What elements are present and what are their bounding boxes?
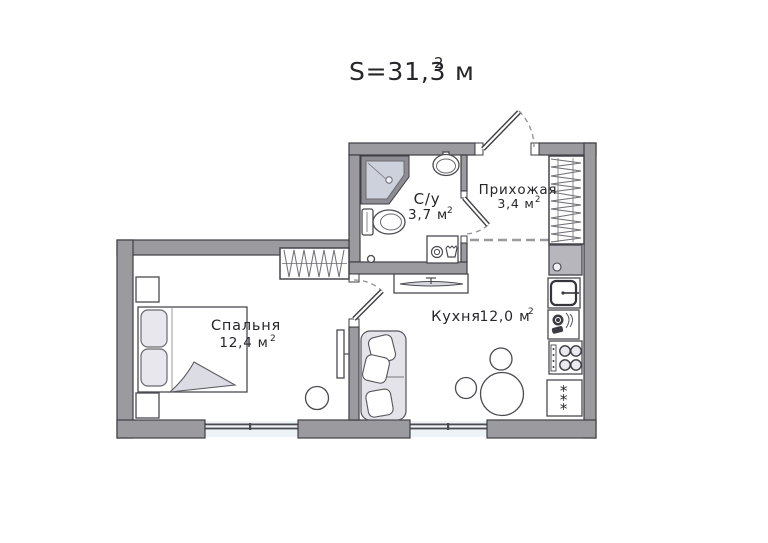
entrance-door-leaf xyxy=(483,112,519,149)
stove-knob xyxy=(553,348,555,350)
bottom-wall-left xyxy=(117,420,205,438)
dishwasher-icon xyxy=(548,310,579,339)
bottom-wall-right xyxy=(487,420,596,438)
dishwasher-body xyxy=(548,310,579,339)
fridge-icon: * * * xyxy=(547,380,582,418)
bedroom-wardrobe-icon xyxy=(280,248,349,279)
nightstand-top xyxy=(136,277,159,302)
bedroom-door-leaf xyxy=(354,291,382,319)
bathroom-door-swing-arc xyxy=(464,225,488,234)
toilet-bowl xyxy=(373,210,405,234)
appliance-body xyxy=(549,245,582,275)
bedroom-window-mullion xyxy=(249,423,251,430)
shower-icon xyxy=(361,156,409,204)
bedroom-label: Спальня 12,4 м 2 xyxy=(211,318,281,351)
bedroom-tv-icon xyxy=(337,330,349,378)
bedroom-window-frame xyxy=(205,424,298,426)
bathroom-door-post-bottom xyxy=(461,236,467,243)
entrance-door-swing-arc xyxy=(519,111,534,147)
entrance-door-post-left xyxy=(475,143,483,155)
room-area: 12,0 м xyxy=(480,309,531,325)
sofa-pillow xyxy=(361,354,390,385)
room-area-superscript: 2 xyxy=(447,206,454,216)
dining-table-icon xyxy=(481,373,524,416)
appliance-knob xyxy=(553,263,561,271)
dining-chair-icon xyxy=(490,348,512,370)
bottom-wall-middle xyxy=(298,420,410,438)
plan-title-text: S=31,3 м xyxy=(349,57,475,86)
dishwasher-plate xyxy=(553,315,564,326)
stove-burner xyxy=(560,346,570,356)
pillow xyxy=(141,310,167,347)
hallway-appliance xyxy=(549,245,582,275)
room-name: Спальня xyxy=(211,318,281,334)
stove-burner xyxy=(560,360,570,370)
bathroom-door xyxy=(464,198,488,234)
hallway-wardrobe-icon xyxy=(549,156,584,244)
bedroom-door xyxy=(354,280,382,319)
fridge-star: * xyxy=(560,400,568,418)
stove-knob xyxy=(553,360,555,362)
bathroom-right-wall-top xyxy=(461,155,467,191)
room-area: 12,4 м xyxy=(219,335,268,351)
room-name: Кухня xyxy=(431,309,481,325)
kitchen-label: Кухня 12,0 м 2 xyxy=(431,307,534,325)
kitchen-window-mullion xyxy=(447,423,449,430)
room-area-superscript: 2 xyxy=(270,334,277,344)
left-wall xyxy=(117,240,133,438)
stove-knob xyxy=(553,354,555,356)
shower-drain xyxy=(386,177,392,183)
toilet-icon xyxy=(362,209,405,235)
right-wall xyxy=(584,143,596,438)
stove-knob xyxy=(553,366,555,368)
sofa-pillow xyxy=(365,388,394,418)
bathroom-door-leaf xyxy=(464,198,488,225)
bathroom-left-wall xyxy=(349,155,360,262)
entrance-door-post-right xyxy=(531,143,539,155)
stove-burner xyxy=(571,360,581,370)
bathroom-label: С/у 3,7 м 2 xyxy=(408,190,454,223)
floor-plan-svg: S=31,3 м 2 xyxy=(0,0,768,543)
kitchen-tv-stand-icon xyxy=(394,274,468,293)
plan-title: S=31,3 м 2 xyxy=(349,54,475,86)
hallway-label: Прихожая 3,4 м 2 xyxy=(479,182,558,211)
entrance-door xyxy=(483,111,534,149)
bedroom-stool-icon xyxy=(306,387,329,410)
stove-icon xyxy=(549,341,582,374)
room-area: 3,7 м xyxy=(408,207,448,223)
room-area: 3,4 м xyxy=(497,196,534,211)
dining-chair-icon xyxy=(456,378,477,399)
sofa-icon xyxy=(361,331,406,420)
top-wall-left xyxy=(349,143,475,155)
bedroom-kitchen-divider-wall xyxy=(349,327,359,420)
plan-title-superscript: 2 xyxy=(434,54,444,72)
floor-drain-icon xyxy=(368,256,375,263)
bedroom-window-frame xyxy=(205,428,298,430)
bathroom-bottom-wall xyxy=(349,262,467,274)
bedroom-door-post-bottom xyxy=(349,319,359,327)
bathroom-right-wall-bottom xyxy=(461,243,467,262)
room-area-superscript: 2 xyxy=(535,195,541,205)
floor-plan-canvas: S=31,3 м 2 xyxy=(0,0,768,543)
room-area-superscript: 2 xyxy=(528,307,535,317)
stove-burner xyxy=(571,346,581,356)
room-name: С/у xyxy=(414,190,441,208)
tv-panel xyxy=(337,330,344,378)
kitchen-sink-icon xyxy=(548,278,580,308)
pillow xyxy=(141,349,167,386)
bedroom-door-post-top xyxy=(349,274,359,282)
nightstand-bottom xyxy=(136,393,159,418)
washing-machine-icon xyxy=(427,236,458,263)
